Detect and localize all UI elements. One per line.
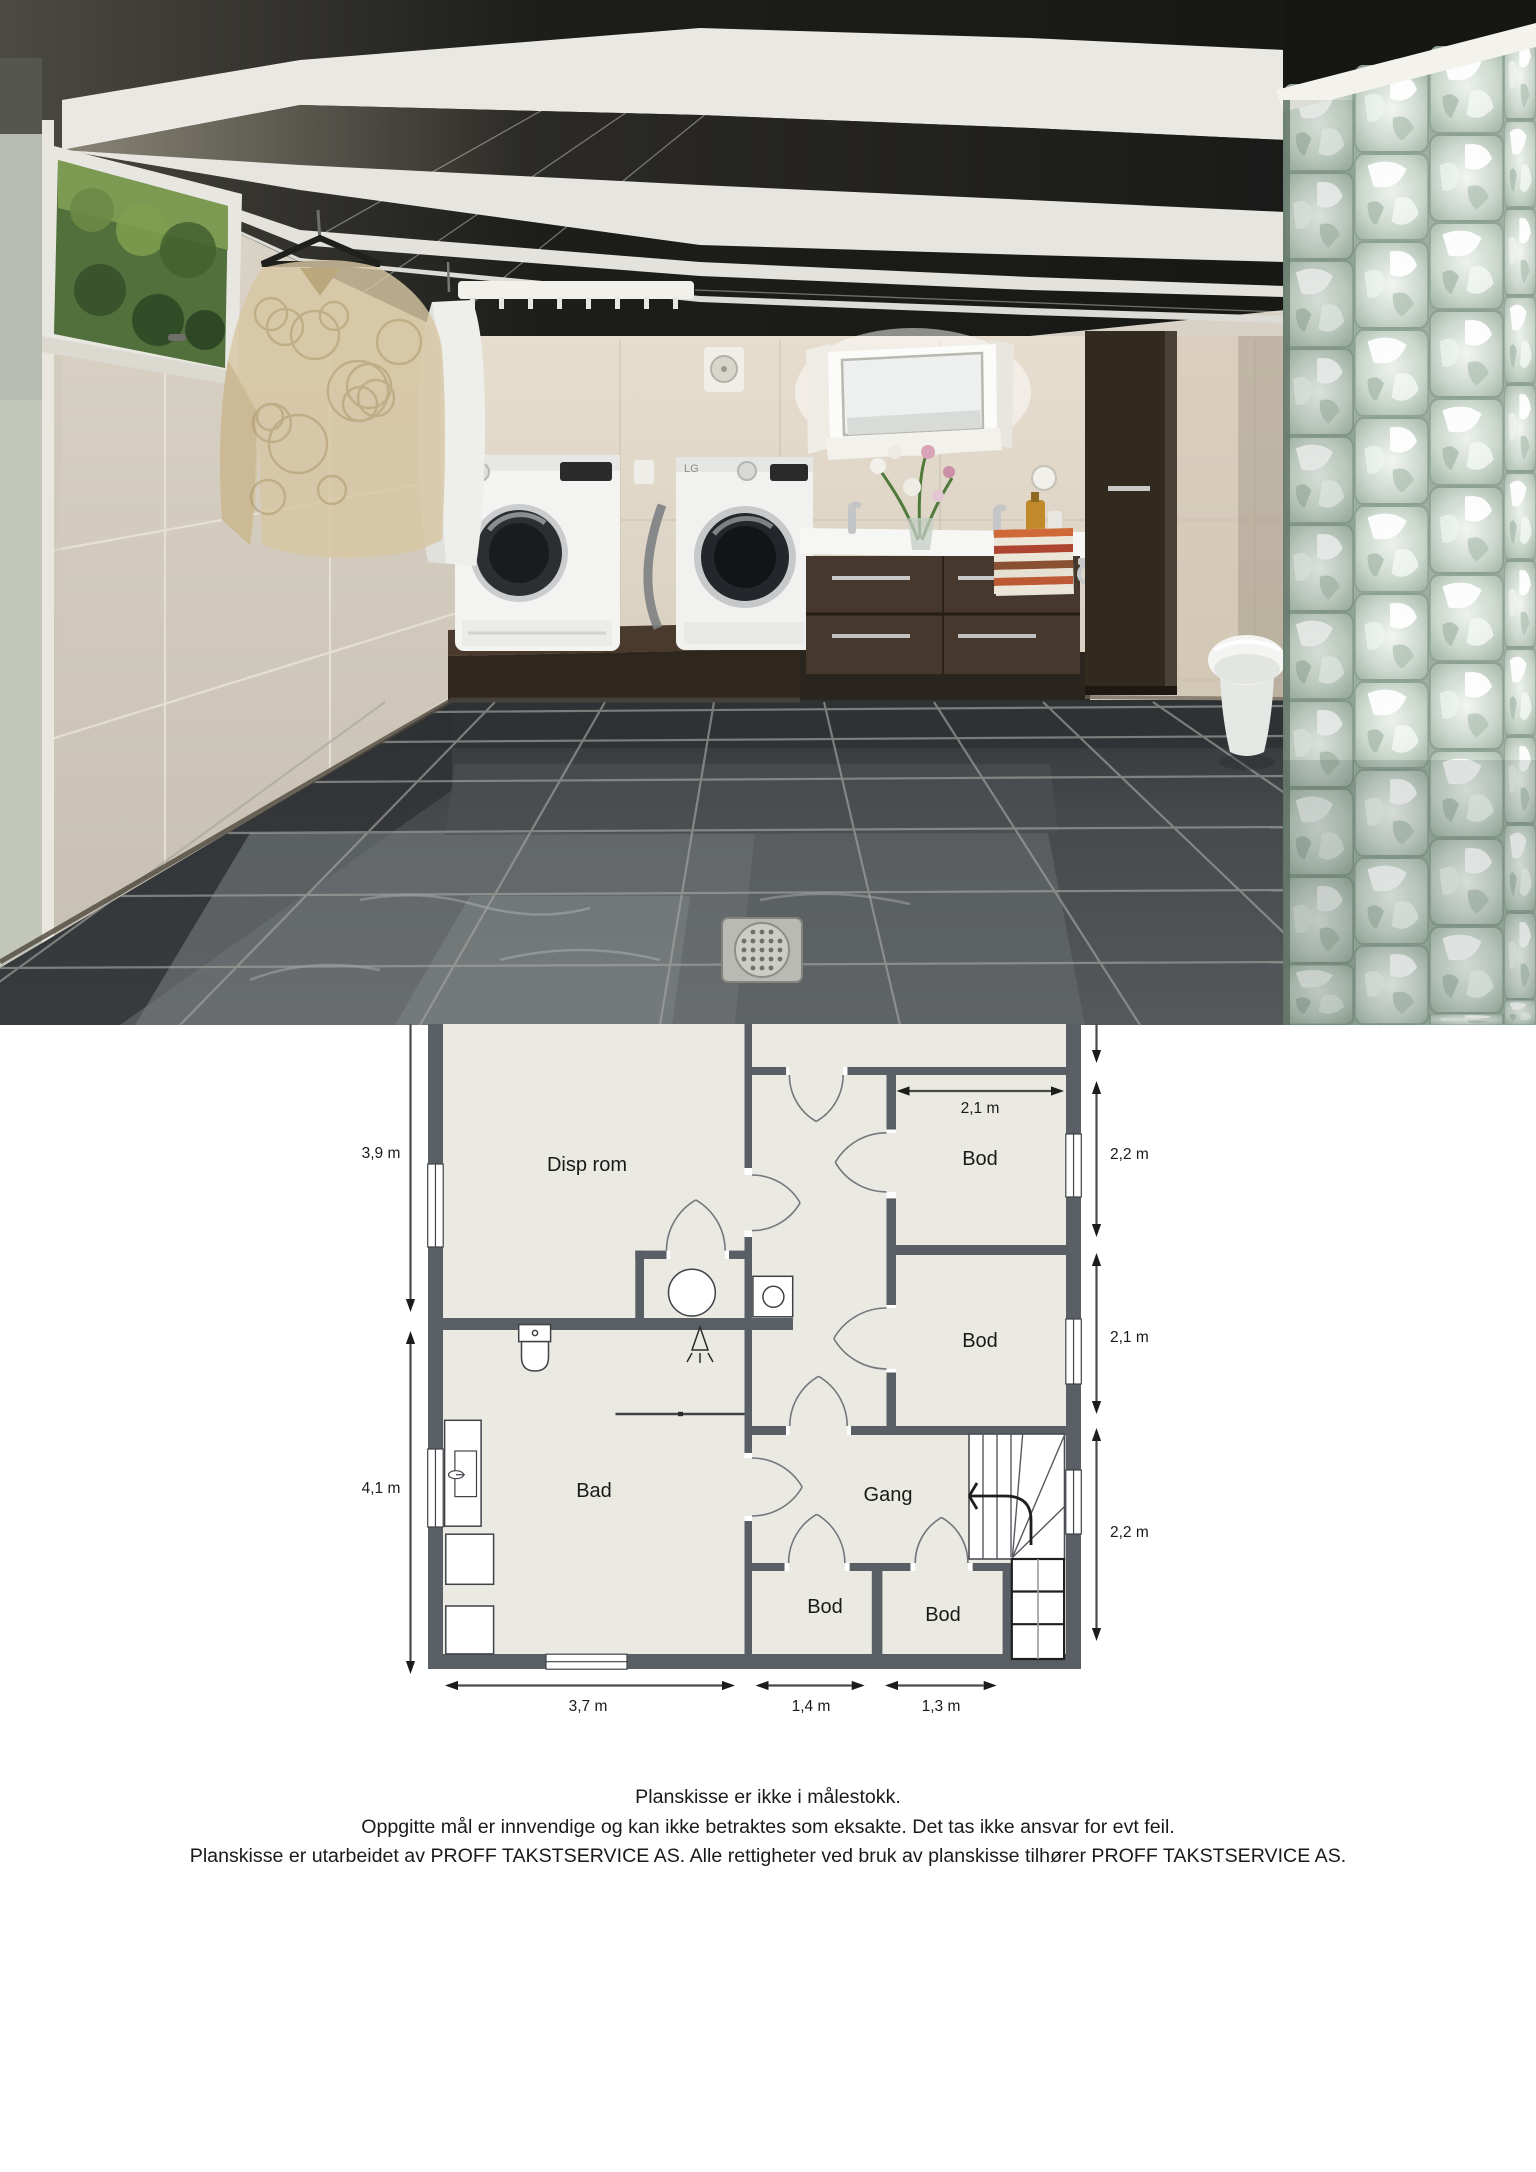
svg-text:LG: LG [684,463,699,475]
svg-text:2,1 m: 2,1 m [961,1100,1000,1117]
svg-text:Planskisse er utarbeidet av PR: Planskisse er utarbeidet av PROFF TAKSTS… [190,1845,1346,1867]
svg-text:1,4 m: 1,4 m [792,1698,831,1715]
svg-text:Bod: Bod [962,1148,998,1170]
svg-text:2,2 m: 2,2 m [1110,1524,1149,1541]
svg-text:Bod: Bod [807,1596,843,1618]
svg-text:Oppgitte mål er innvendige og: Oppgitte mål er innvendige og kan ikke b… [361,1816,1175,1838]
svg-text:3,9 m: 3,9 m [362,1145,401,1162]
svg-text:2,2 m: 2,2 m [1110,1146,1149,1163]
svg-text:4,1 m: 4,1 m [362,1480,401,1497]
svg-text:Disp rom: Disp rom [547,1154,627,1176]
svg-text:Bad: Bad [576,1480,612,1502]
svg-text:Gang: Gang [864,1484,913,1506]
svg-text:Bod: Bod [962,1330,998,1352]
svg-text:3,7 m: 3,7 m [569,1698,608,1715]
svg-text:1,3 m: 1,3 m [922,1698,961,1715]
svg-text:2,1 m: 2,1 m [1110,1329,1149,1346]
svg-text:Bod: Bod [925,1604,961,1626]
svg-text:Planskisse er ikke i målestokk: Planskisse er ikke i målestokk. [635,1786,901,1808]
